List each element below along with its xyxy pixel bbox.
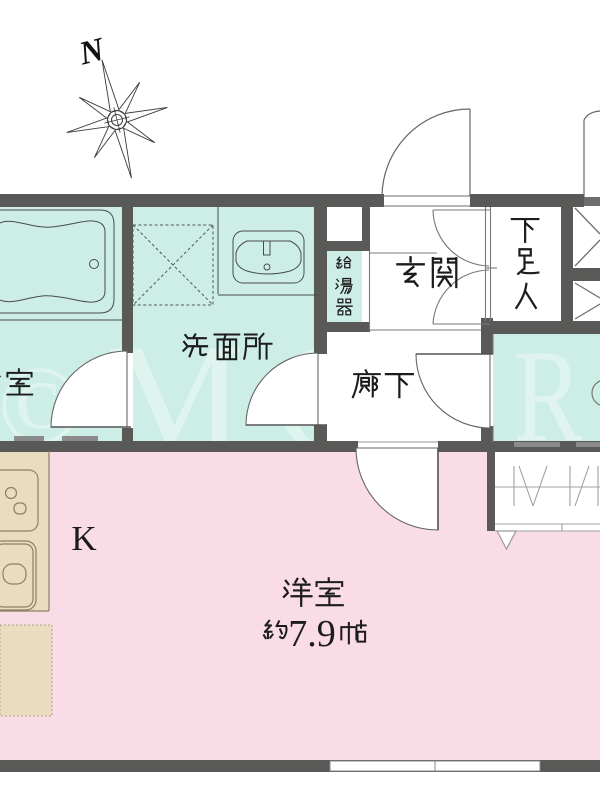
svg-text:K: K [71, 519, 96, 558]
svg-text:7.9: 7.9 [288, 613, 336, 655]
